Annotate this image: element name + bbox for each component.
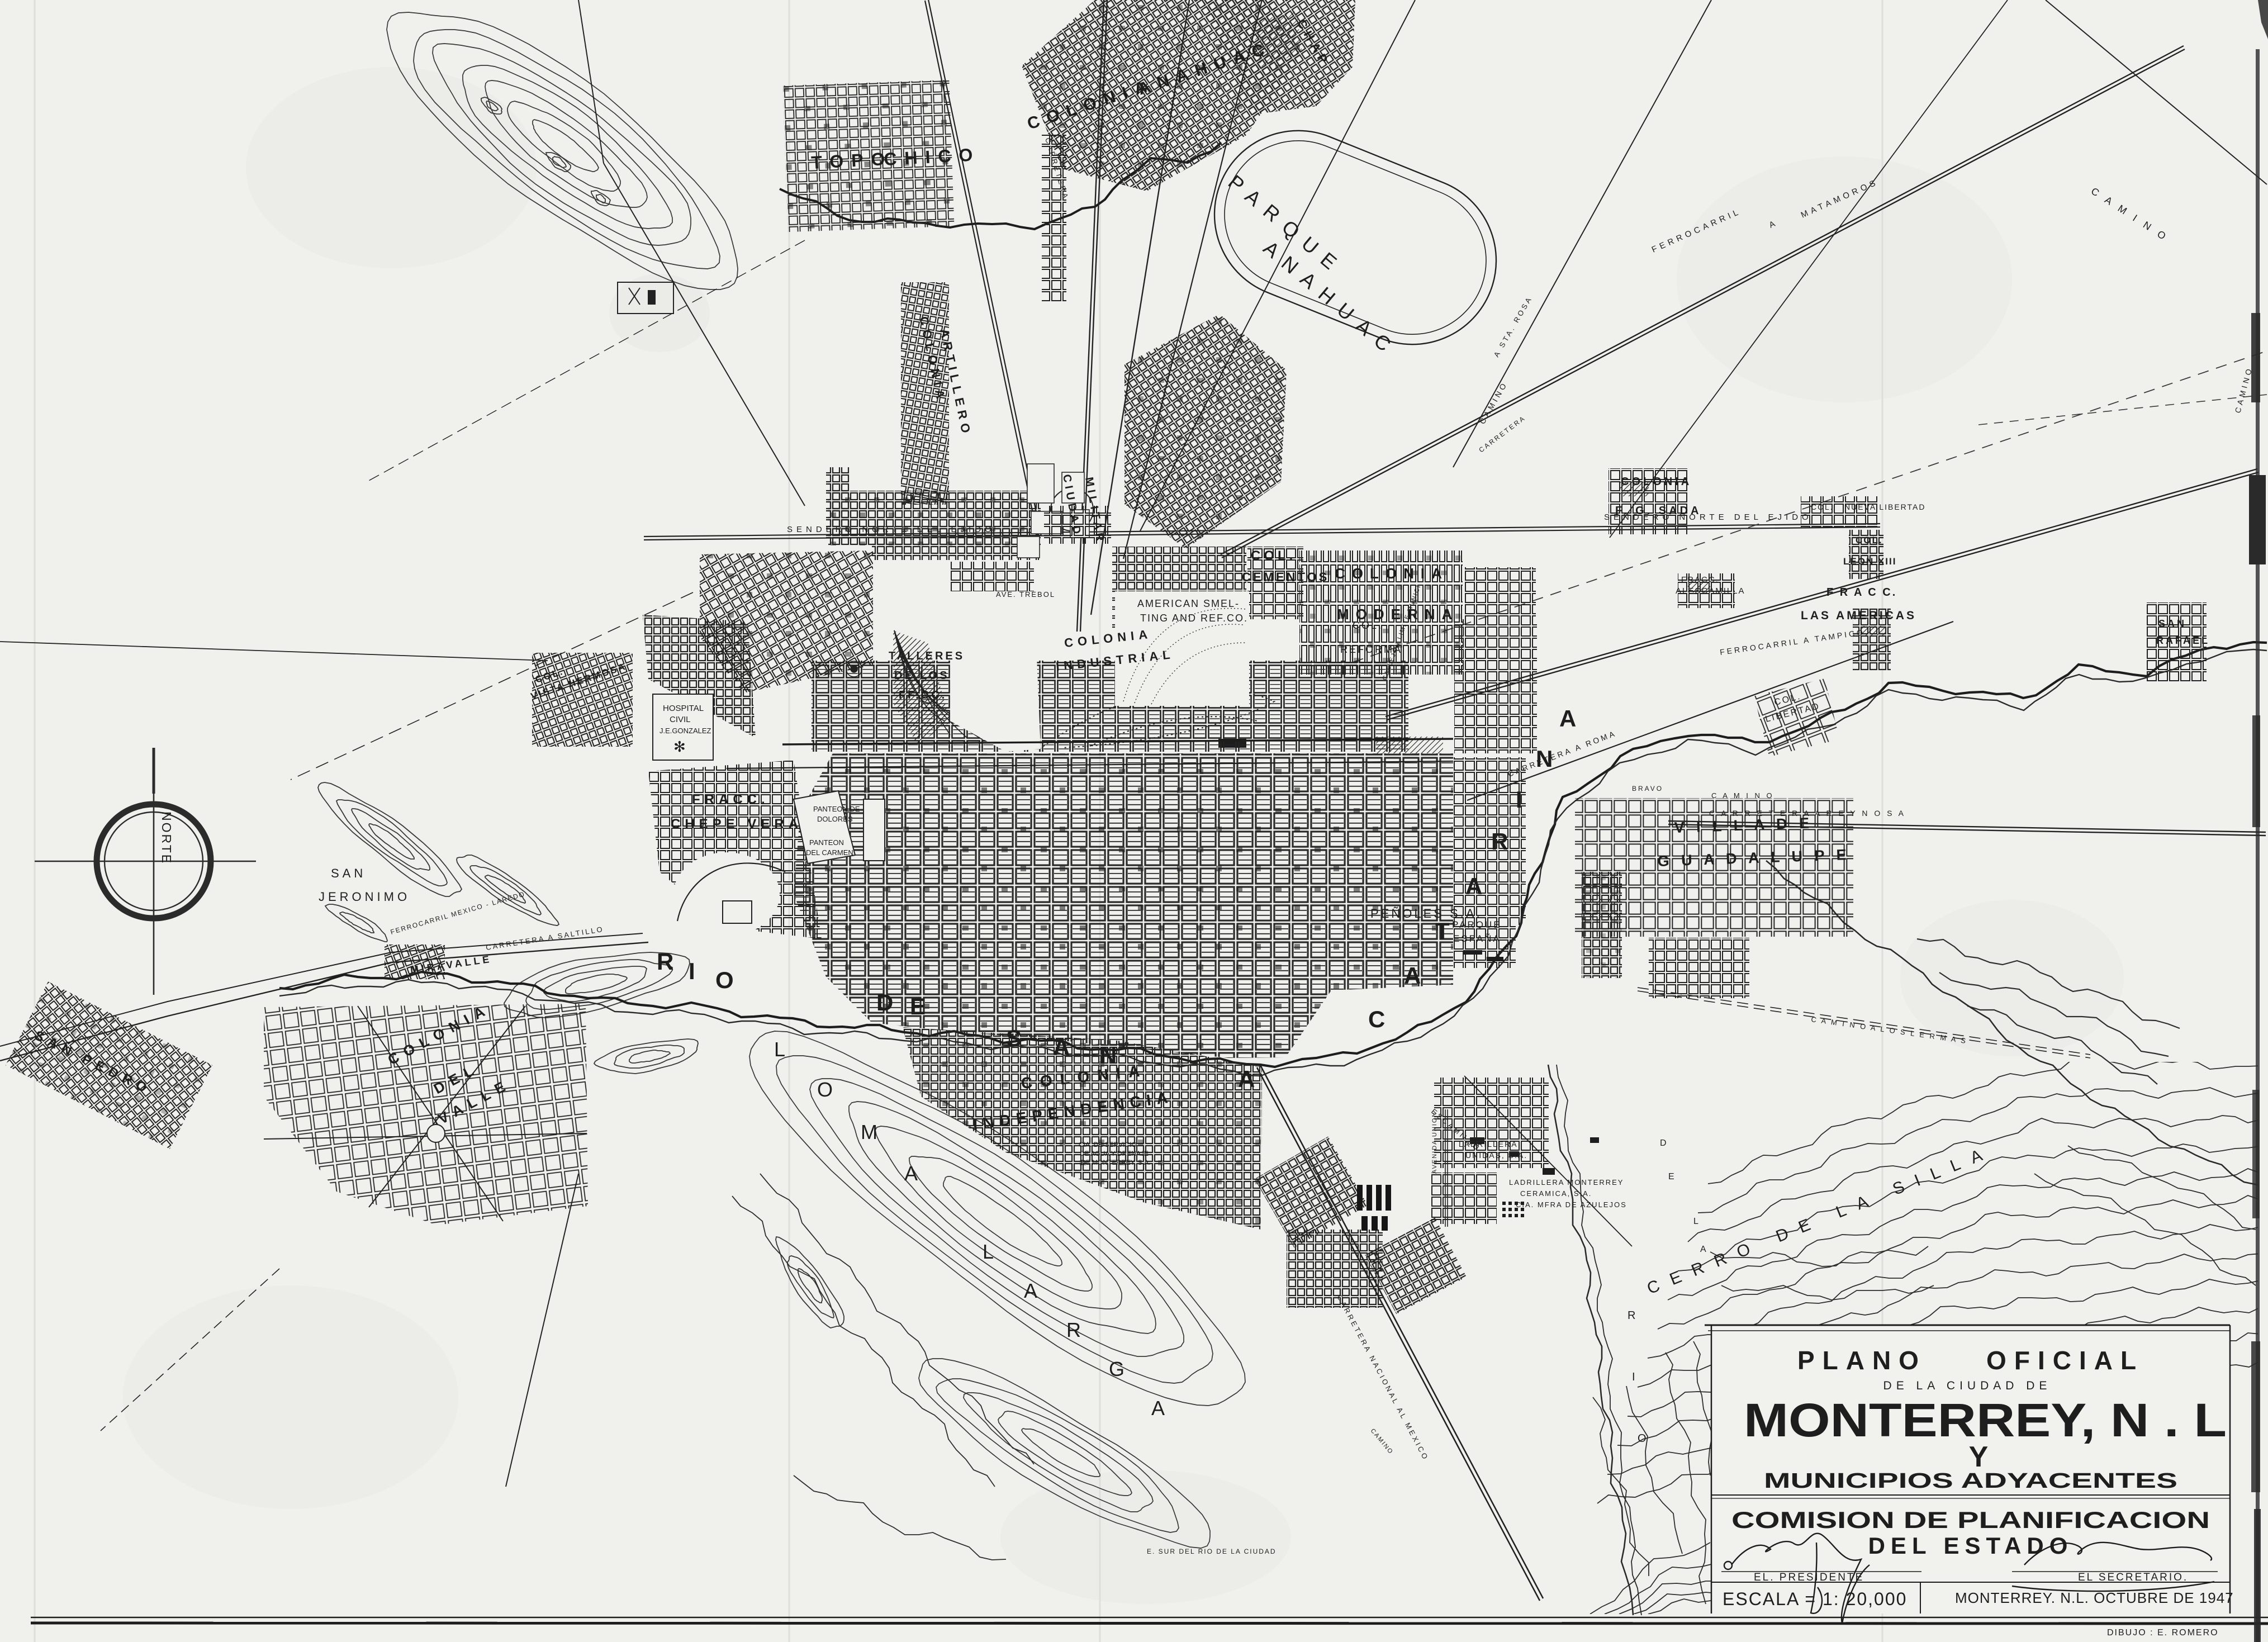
svg-text:TOPO: TOPO: [810, 148, 893, 173]
svg-text:E: E: [910, 993, 926, 1019]
svg-text:COL.: COL.: [1811, 502, 1834, 511]
svg-text:FF.CC.: FF.CC.: [899, 689, 947, 701]
svg-text:CERAMICA, S.A.: CERAMICA, S.A.: [1520, 1189, 1592, 1198]
svg-text:FRACC.: FRACC.: [1681, 575, 1719, 585]
svg-text:R: R: [1066, 1318, 1081, 1341]
svg-text:R: R: [1491, 828, 1508, 855]
svg-text:L: L: [774, 1038, 785, 1061]
svg-text:ESPAÑA: ESPAÑA: [1453, 933, 1501, 944]
svg-text:PEÑOLES S.A.: PEÑOLES S.A.: [1370, 907, 1482, 920]
svg-text:BRAVO: BRAVO: [1632, 785, 1663, 792]
svg-text:DE AGUA Y DRENAJE: DE AGUA Y DRENAJE: [1080, 1150, 1149, 1157]
svg-text:DEL CARMEN: DEL CARMEN: [806, 848, 853, 857]
svg-text:I: I: [689, 958, 695, 984]
svg-text:SAN: SAN: [2158, 618, 2186, 629]
svg-text:F R A C C.: F R A C C.: [1826, 586, 1897, 599]
svg-text:HOSPITAL: HOSPITAL: [663, 704, 704, 713]
svg-text:F. G. SADA: F. G. SADA: [1615, 505, 1701, 517]
svg-text:G: G: [1109, 1358, 1124, 1380]
svg-text:T: T: [1435, 918, 1450, 944]
svg-text:R: R: [657, 948, 673, 975]
svg-text:TING AND REF.CO.: TING AND REF.CO.: [1140, 613, 1248, 624]
svg-text:NORTE: NORTE: [159, 811, 174, 865]
svg-text:AVE. TREBOL: AVE. TREBOL: [996, 590, 1055, 599]
svg-text:AVENIDA UNION: AVENIDA UNION: [1431, 1112, 1438, 1174]
svg-text:PANTEON: PANTEON: [809, 838, 844, 847]
svg-text:TALLERES: TALLERES: [889, 650, 965, 662]
svg-text:L: L: [1693, 1217, 1698, 1226]
svg-text:DOLORES: DOLORES: [817, 815, 853, 823]
svg-text:MONTERREY. N.L. OCTUBRE DE 194: MONTERREY. N.L. OCTUBRE DE 1947: [1955, 1589, 2234, 1606]
svg-text:CIVIL: CIVIL: [670, 715, 691, 724]
svg-text:S: S: [1006, 1025, 1022, 1051]
svg-text:COL.: COL.: [1353, 620, 1383, 631]
svg-text:DIBUJO : E. ROMERO: DIBUJO : E. ROMERO: [2107, 1628, 2219, 1638]
svg-text:A: A: [1024, 1279, 1037, 1302]
svg-text:DEL ESTADO: DEL ESTADO: [1868, 1532, 2074, 1559]
svg-text:SAN: SAN: [331, 866, 366, 880]
svg-text:L: L: [983, 1240, 994, 1263]
svg-text:ALESCAMILLA: ALESCAMILLA: [1676, 586, 1745, 596]
svg-text:LAS AMERICAS: LAS AMERICAS: [1801, 609, 1916, 622]
svg-text:COL.: COL.: [1856, 535, 1883, 545]
svg-text:COMISION DE PLANIFICACION: COMISION DE PLANIFICACION: [1731, 1507, 2210, 1533]
svg-text:C A M I N O: C A M I N O: [1711, 791, 1774, 800]
svg-text:✻: ✻: [673, 738, 686, 755]
svg-text:CEMENTOS: CEMENTOS: [1242, 570, 1329, 584]
svg-text:COL.: COL.: [1251, 548, 1296, 563]
svg-text:D: D: [876, 989, 893, 1015]
svg-text:C A R R E T E R A A R: C A R R E T E R A A R E Y N O S A: [1709, 809, 1906, 818]
svg-text:A: A: [1404, 962, 1421, 989]
svg-text:MUNICIPIOS ADYACENTES: MUNICIPIOS ADYACENTES: [1764, 1469, 2177, 1493]
svg-text:A: A: [1700, 1245, 1706, 1254]
svg-text:EL. PRESIDENTE: EL. PRESIDENTE: [1754, 1572, 1864, 1583]
svg-text:PARQUE: PARQUE: [1452, 919, 1502, 930]
svg-text:FRACC.: FRACC.: [692, 792, 770, 807]
svg-text:MONTERREY, N . L: MONTERREY, N . L: [1744, 1394, 2227, 1446]
svg-text:E. SUR DEL RIO DE LA CIUDAD: E. SUR DEL RIO DE LA CIUDAD: [1147, 1548, 1277, 1555]
svg-text:DE LA CIUDAD DE: DE LA CIUDAD DE: [1883, 1379, 2052, 1392]
svg-text:A: A: [1238, 1066, 1255, 1092]
svg-text:O: O: [817, 1078, 833, 1101]
svg-text:DE MONTERREY, S.A.: DE MONTERREY, S.A.: [1081, 1159, 1150, 1166]
svg-text:COLONIA: COLONIA: [1621, 476, 1692, 488]
svg-text:R: R: [1628, 1309, 1635, 1322]
svg-text:D: D: [1660, 1138, 1667, 1148]
svg-text:UNIDAS, S.A.: UNIDAS, S.A.: [1465, 1151, 1527, 1160]
svg-text:PLANO OFICIAL: PLANO OFICIAL: [1797, 1346, 2144, 1375]
svg-text:COLONIA: COLONIA: [1335, 565, 1449, 582]
svg-text:DE LOS: DE LOS: [894, 670, 949, 682]
svg-text:C: C: [1368, 1006, 1385, 1032]
svg-text:Y: Y: [1969, 1441, 1989, 1473]
svg-text:LEON XIII: LEON XIII: [1843, 556, 1896, 567]
svg-text:NUEVA LIBERTAD: NUEVA LIBERTAD: [1844, 502, 1925, 511]
svg-text:SENDERO NORTE DEL EJIDO: SENDERO NORTE DEL EJIDO: [787, 525, 995, 534]
svg-text:RAFAEL: RAFAEL: [2156, 635, 2210, 646]
svg-text:I: I: [1516, 786, 1522, 813]
svg-text:A: A: [904, 1162, 918, 1185]
svg-text:EL SECRETARIO.: EL SECRETARIO.: [2078, 1572, 2188, 1583]
svg-text:I: I: [1632, 1371, 1635, 1383]
svg-text:CIA. MFRA DE AZULEJOS: CIA. MFRA DE AZULEJOS: [1516, 1200, 1627, 1209]
svg-text:O: O: [715, 967, 734, 993]
svg-text:O: O: [1638, 1432, 1647, 1445]
svg-text:PANTEON DE: PANTEON DE: [813, 805, 860, 813]
svg-text:M: M: [861, 1121, 877, 1143]
svg-text:CHEPE VERA: CHEPE VERA: [671, 817, 803, 832]
svg-text:A: A: [1559, 705, 1576, 732]
svg-text:ESCALA = 1: 20,000: ESCALA = 1: 20,000: [1723, 1589, 1907, 1609]
svg-text:A: A: [1151, 1397, 1165, 1420]
svg-text:AMERICAN SMEL-: AMERICAN SMEL-: [1137, 598, 1240, 609]
svg-text:LADRILLERA MONTERREY: LADRILLERA MONTERREY: [1509, 1178, 1624, 1187]
svg-text:N: N: [1100, 1042, 1117, 1068]
svg-text:JERONIMO: JERONIMO: [319, 890, 410, 904]
svg-text:A: A: [1053, 1034, 1070, 1060]
svg-text:CIA. DE SERVICIO: CIA. DE SERVICIO: [1079, 1141, 1137, 1149]
svg-text:J.E.GONZALEZ: J.E.GONZALEZ: [659, 727, 711, 735]
svg-text:A: A: [1465, 873, 1482, 899]
svg-text:E: E: [1668, 1172, 1674, 1181]
